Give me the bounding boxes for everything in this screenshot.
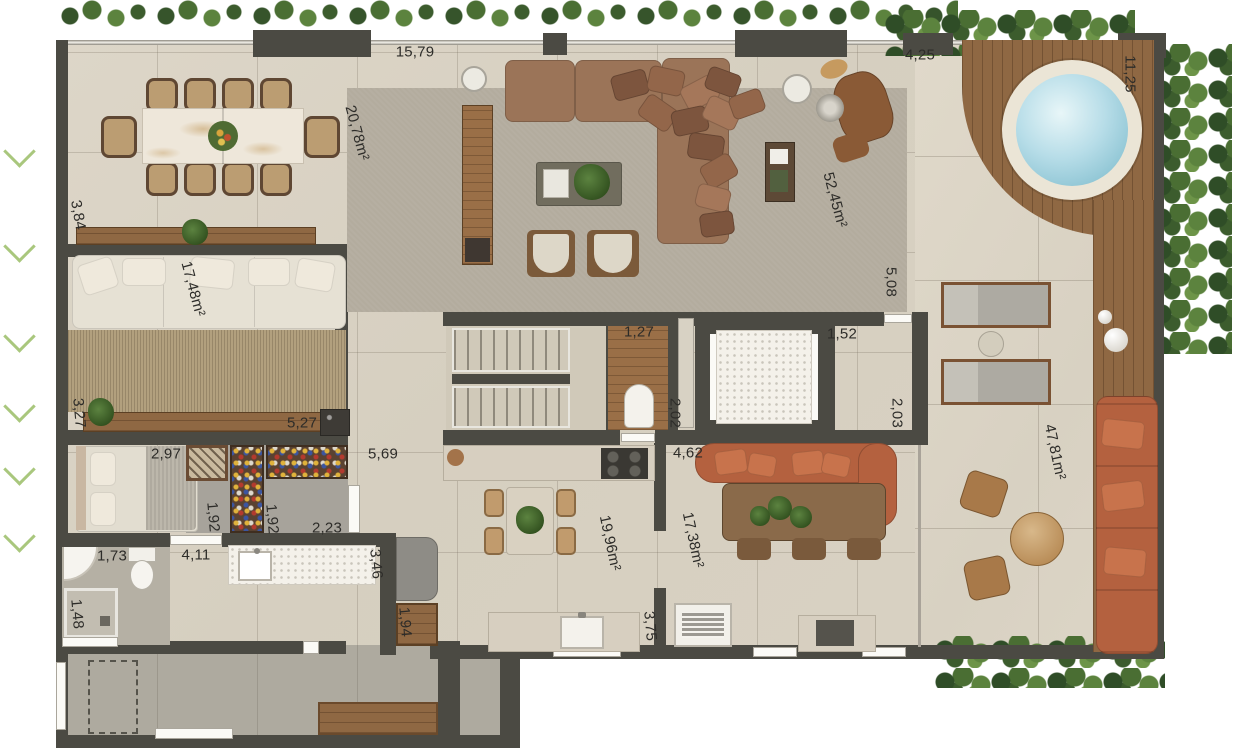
dimension-label: 3,27 (69, 397, 89, 428)
hedge-right (1152, 44, 1232, 354)
dining-chair (260, 162, 292, 196)
wine-rack-vertical (230, 445, 264, 533)
landscape-mark (3, 320, 36, 353)
dining2-chair (847, 538, 881, 560)
kitchen-chair (556, 489, 576, 517)
wall-closet-bottom-a (56, 533, 170, 547)
side-table-books (770, 170, 788, 192)
tripod-table (782, 74, 812, 104)
wall-core-right (912, 312, 928, 445)
pillow (713, 448, 748, 476)
living-sofa-module (505, 60, 575, 122)
lounge-rug (68, 330, 346, 412)
landscape-mark (3, 135, 36, 168)
side-table-decor (770, 149, 788, 164)
kitchen-table-plant (516, 506, 544, 534)
terrace-round-table (1010, 512, 1064, 566)
deck-sphere (1098, 310, 1112, 324)
pillar (253, 30, 371, 57)
shelf-marble-box (320, 409, 350, 436)
dimension-label: 2,23 (312, 520, 342, 537)
sun-lounger-head (944, 285, 978, 325)
dimension-label: 1,52 (827, 326, 857, 343)
wing-window-left (56, 662, 66, 730)
pillow (294, 257, 337, 293)
glass-dining2-terrace (918, 445, 921, 647)
wing-wall-bottom (56, 735, 520, 748)
dimension-label: 1,27 (624, 324, 654, 341)
dimension-label: 1,94 (395, 606, 415, 637)
laundry-faucet (254, 548, 260, 554)
dimension-label: 3,46 (366, 548, 386, 579)
wine-rack-horizontal (266, 445, 348, 479)
dining-chair (260, 78, 292, 112)
elevator-door (710, 334, 716, 420)
dining-chair (184, 78, 216, 112)
hedge-top (58, 0, 958, 30)
bath-toilet-bowl (130, 560, 154, 590)
coffee-table-tray (543, 169, 569, 198)
dining-chair (184, 162, 216, 196)
elevator-door (812, 334, 818, 420)
wall-kitchen-dining2-top (654, 443, 666, 531)
pillow (698, 210, 735, 238)
pillow (248, 258, 290, 286)
pillow (1101, 418, 1146, 450)
coffee-table-plant (574, 164, 610, 200)
wing-door (303, 641, 319, 654)
stair-run-upper (452, 328, 570, 372)
dining-chair (146, 162, 178, 196)
fridge (396, 537, 438, 601)
pillow (1103, 546, 1147, 578)
future-equipment-outline (88, 660, 138, 734)
dimension-label: 15,79 (396, 44, 435, 61)
kitchen-faucet (578, 612, 586, 618)
dining2-chair (792, 538, 826, 560)
floor-plan: 15,79 20,78m² 4,25 11,25 3,84 17,48m² 52… (0, 0, 1235, 748)
wing-wall-right (500, 641, 520, 748)
dining2-plant (750, 506, 770, 526)
shower-drain (100, 616, 110, 626)
pillow (122, 258, 166, 286)
lounger-side-table (978, 331, 1004, 357)
floor-lamp (816, 94, 844, 122)
cooktop (601, 448, 648, 479)
elevator-cab (716, 330, 812, 424)
window-dining2 (753, 647, 797, 657)
pillow (1100, 480, 1145, 513)
terrace-pouf (962, 554, 1011, 602)
terrace-counter-sink (816, 620, 854, 646)
dimension-label: 11,25 (1122, 55, 1139, 92)
pillar (543, 33, 567, 55)
dining-chair-end (101, 116, 137, 158)
door-hallway (170, 535, 222, 545)
dining2-plant (790, 506, 812, 528)
dining-chair-end (304, 116, 340, 158)
bbq-grill-grate (682, 612, 724, 638)
dimension-label: 1,92 (262, 503, 282, 534)
wc-toilet (624, 384, 654, 428)
armchair-cushion (594, 234, 632, 273)
dimension-label: 2,03 (889, 398, 906, 428)
dimension-label: 4,11 (182, 547, 211, 564)
dimension-label: 5,69 (368, 446, 398, 463)
centerpiece (208, 121, 238, 151)
dimension-label: 1,48 (67, 598, 87, 629)
pillow (746, 452, 777, 479)
door-closet-corridor (348, 485, 360, 533)
wing-bench (318, 702, 438, 735)
bed-pillow (90, 452, 116, 486)
dining-chair (222, 162, 254, 196)
dining2-chair (737, 538, 771, 560)
sun-lounger-head (944, 362, 978, 402)
stair-run-lower (452, 386, 570, 428)
dining-chair (146, 78, 178, 112)
dimension-label: 5,08 (883, 267, 900, 297)
laundry-sink (238, 551, 272, 581)
landscape-mark (3, 453, 36, 486)
dimension-label: 4,25 (905, 47, 935, 64)
dimension-label: 2,02 (667, 398, 684, 428)
bath-window (62, 637, 118, 647)
dimension-label: 1,92 (203, 501, 223, 532)
dimension-label: 5,27 (287, 415, 317, 432)
wing-wall-mid (438, 641, 460, 741)
wing-window-bottom (155, 728, 233, 739)
kitchen-sink (560, 616, 604, 649)
door-wc (621, 433, 655, 442)
pillow (791, 449, 825, 476)
wall-core-bottom-a (443, 430, 620, 445)
console-plant (182, 219, 208, 245)
dining2-plant (768, 496, 792, 520)
wall-lounge-bottom (56, 430, 348, 445)
kitchen-chair (556, 527, 576, 555)
dimension-label: 2,97 (151, 446, 181, 463)
dimension-label: 3,75 (640, 610, 660, 641)
side-table-round (461, 66, 487, 92)
landscape-mark (3, 390, 36, 423)
dining-chair (222, 78, 254, 112)
hot-tub-water (1016, 74, 1128, 186)
sideboard-shelf (465, 238, 490, 262)
kitchen-chair (484, 527, 504, 555)
bed-pillow (90, 492, 116, 526)
shelf-plant (88, 398, 114, 426)
deck-sphere (1104, 328, 1128, 352)
pillar (735, 30, 847, 57)
landscape-mark (3, 230, 36, 263)
kitchen-stool (447, 449, 464, 466)
dimension-label: 1,73 (97, 548, 127, 565)
armchair-cushion (533, 234, 569, 273)
stair-divider (452, 374, 570, 384)
door-hall152 (884, 314, 912, 323)
bed-headboard (76, 446, 86, 530)
kitchen-chair (484, 489, 504, 517)
closet-hanger-unit (186, 445, 228, 481)
dimension-label: 4,62 (673, 445, 703, 462)
landscape-mark (3, 520, 36, 553)
